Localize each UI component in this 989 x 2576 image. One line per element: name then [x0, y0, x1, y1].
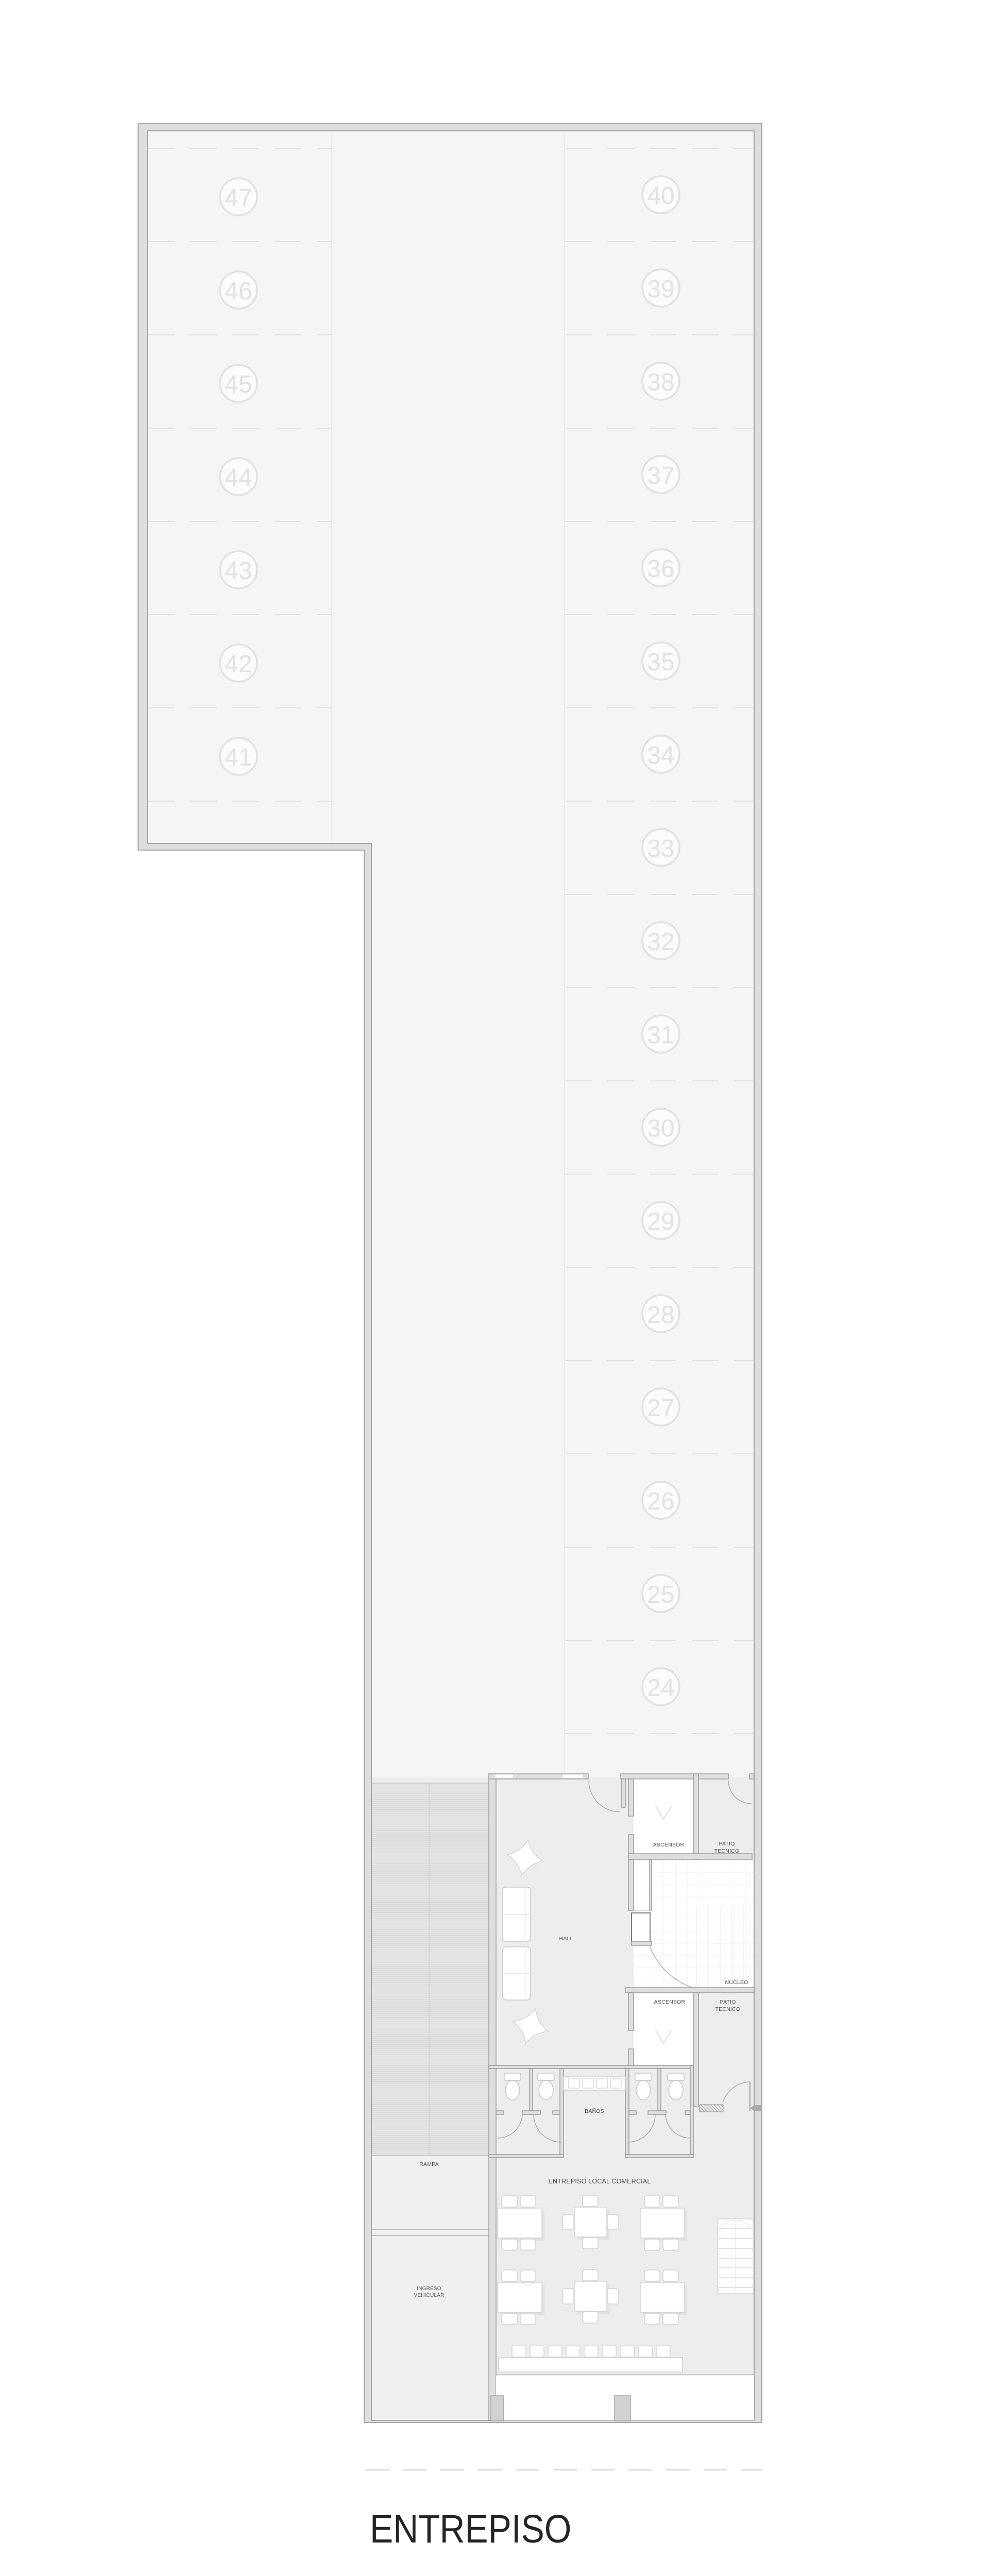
svg-text:39: 39	[647, 276, 674, 303]
svg-text:BAÑOS: BAÑOS	[585, 2108, 604, 2114]
svg-text:27: 27	[647, 1395, 674, 1422]
svg-text:30: 30	[647, 1115, 674, 1142]
svg-text:41: 41	[225, 744, 252, 771]
svg-text:46: 46	[225, 278, 252, 305]
svg-text:HALL: HALL	[559, 1936, 573, 1942]
svg-text:37: 37	[647, 462, 674, 489]
svg-text:35: 35	[647, 649, 674, 676]
svg-text:INGRESO: INGRESO	[417, 2286, 441, 2292]
svg-text:TECNICO: TECNICO	[715, 2006, 741, 2012]
svg-text:NUCLEO: NUCLEO	[725, 1979, 748, 1986]
svg-text:28: 28	[647, 1301, 674, 1329]
svg-text:36: 36	[647, 555, 674, 583]
svg-text:42: 42	[225, 651, 252, 678]
svg-text:32: 32	[647, 928, 674, 956]
svg-text:ENTREPISO: ENTREPISO	[370, 2507, 572, 2551]
svg-text:33: 33	[647, 835, 674, 862]
svg-text:PATIO: PATIO	[719, 1841, 735, 1847]
svg-text:ASCENSOR: ASCENSOR	[654, 1999, 686, 2005]
svg-text:44: 44	[225, 464, 252, 492]
svg-text:40: 40	[647, 182, 674, 210]
svg-text:PATIO: PATIO	[720, 1999, 736, 2005]
svg-text:TECNICO: TECNICO	[714, 1848, 740, 1854]
svg-text:47: 47	[225, 184, 252, 212]
svg-text:ASCENSOR: ASCENSOR	[653, 1842, 685, 1848]
svg-text:31: 31	[647, 1022, 674, 1049]
svg-text:ENTREPISO LOCAL COMERCIAL: ENTREPISO LOCAL COMERCIAL	[548, 2178, 651, 2185]
svg-text:RAMPA: RAMPA	[419, 2161, 439, 2167]
svg-text:45: 45	[225, 371, 252, 398]
svg-text:43: 43	[225, 557, 252, 585]
svg-text:34: 34	[647, 742, 674, 769]
svg-text:29: 29	[647, 1208, 674, 1235]
svg-text:26: 26	[647, 1488, 674, 1515]
svg-text:VEHICULAR: VEHICULAR	[414, 2293, 444, 2298]
svg-text:38: 38	[647, 369, 674, 396]
svg-text:25: 25	[647, 1581, 674, 1608]
svg-text:24: 24	[647, 1674, 674, 1702]
